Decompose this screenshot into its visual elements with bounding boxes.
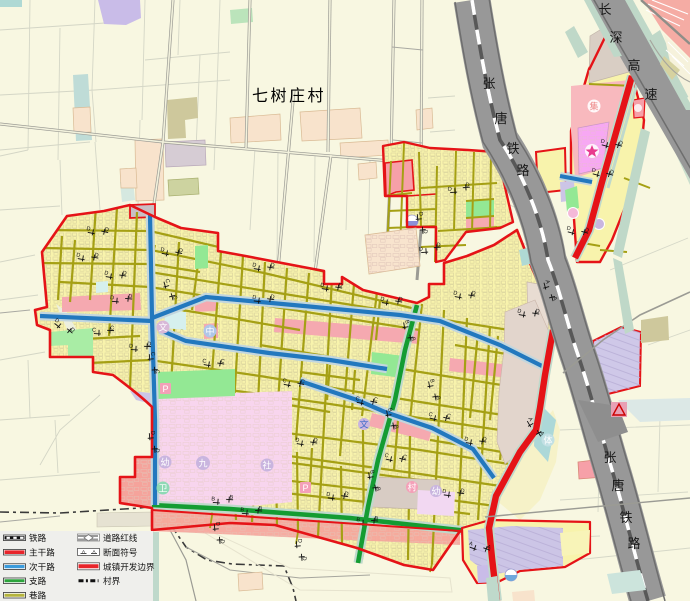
svg-text:路: 路 <box>627 536 640 551</box>
svg-text:七树庄村: 七树庄村 <box>252 87 326 105</box>
svg-text:D: D <box>110 295 115 301</box>
svg-text:唐: 唐 <box>494 111 507 126</box>
svg-text:张: 张 <box>603 450 616 465</box>
svg-text:D: D <box>301 556 307 561</box>
svg-text:长: 长 <box>598 2 611 17</box>
svg-text:C: C <box>92 327 96 333</box>
svg-text:P: P <box>302 483 308 493</box>
svg-text:村: 村 <box>407 482 416 493</box>
svg-text:D: D <box>419 246 423 252</box>
svg-text:D: D <box>460 488 465 494</box>
svg-text:中: 中 <box>205 326 214 337</box>
svg-text:P: P <box>162 384 168 394</box>
svg-text:深: 深 <box>609 30 622 45</box>
svg-text:道路红线: 道路红线 <box>103 532 138 543</box>
svg-text:速: 速 <box>644 87 657 102</box>
svg-text:铁路: 铁路 <box>29 532 47 543</box>
svg-text:路: 路 <box>516 163 529 178</box>
svg-text:C: C <box>110 325 114 331</box>
svg-text:村界: 村界 <box>103 575 121 586</box>
svg-text:主干路: 主干路 <box>29 546 55 557</box>
svg-text:D: D <box>296 539 302 544</box>
svg-text:唐: 唐 <box>611 478 624 493</box>
svg-text:卫: 卫 <box>158 484 167 494</box>
svg-text:D: D <box>448 186 452 192</box>
svg-text:D: D <box>128 294 133 300</box>
svg-text:C: C <box>154 369 160 374</box>
svg-text:文: 文 <box>359 419 368 430</box>
svg-text:铁: 铁 <box>619 510 632 525</box>
svg-text:张: 张 <box>482 76 495 91</box>
svg-text:D: D <box>417 212 423 217</box>
svg-text:D: D <box>147 341 151 347</box>
svg-text:巷路: 巷路 <box>29 589 47 600</box>
svg-text:D: D <box>326 492 331 498</box>
svg-text:D: D <box>219 539 225 544</box>
svg-text:D: D <box>437 242 441 248</box>
svg-text:幼: 幼 <box>160 457 169 468</box>
svg-text:体: 体 <box>543 435 552 446</box>
svg-text:A: A <box>92 549 95 554</box>
svg-text:D: D <box>422 229 428 234</box>
svg-text:D: D <box>214 522 220 527</box>
svg-text:D: D <box>129 343 133 349</box>
svg-text:C: C <box>149 352 155 357</box>
svg-text:集: 集 <box>589 101 598 112</box>
svg-text:铁: 铁 <box>506 141 519 156</box>
svg-text:D: D <box>270 294 275 300</box>
svg-text:社: 社 <box>262 460 271 471</box>
svg-text:D: D <box>149 431 155 436</box>
svg-text:城镇开发边界: 城镇开发边界 <box>103 561 155 572</box>
svg-text:高: 高 <box>627 58 640 73</box>
svg-text:D: D <box>252 295 257 301</box>
svg-text:D: D <box>466 182 470 188</box>
svg-text:支路: 支路 <box>29 575 47 586</box>
svg-text:文: 文 <box>158 322 167 333</box>
svg-text:断面符号: 断面符号 <box>103 546 137 557</box>
svg-text:D: D <box>344 491 349 497</box>
svg-text:次干路: 次干路 <box>29 561 55 572</box>
svg-text:A: A <box>82 549 85 554</box>
svg-text:幼: 幼 <box>431 486 440 497</box>
svg-text:九: 九 <box>198 459 207 469</box>
svg-text:D: D <box>442 489 447 495</box>
svg-text:D: D <box>154 448 160 453</box>
